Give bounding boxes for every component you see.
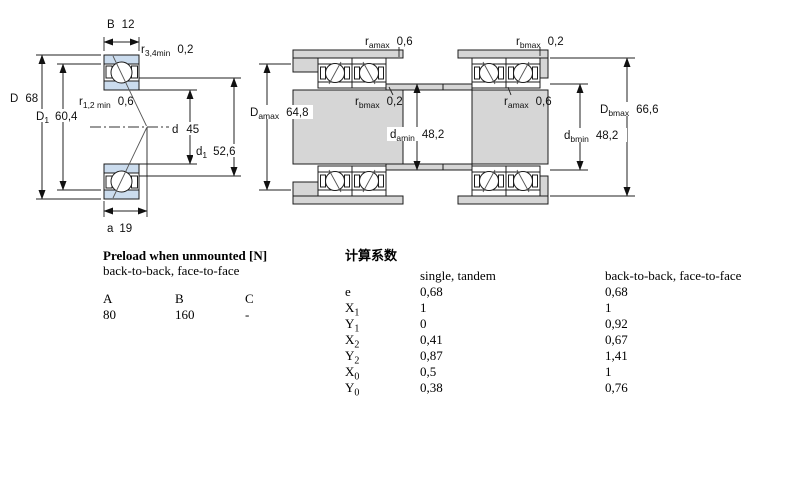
dim-label-D1: D160,4 [36, 111, 78, 125]
preload-col-header: A [103, 291, 175, 306]
factor-value: 0,5 [420, 364, 605, 379]
technical-drawings: B12 r3,4min0,2 D68 D160,4 r1,2 min0,6 d4… [0, 0, 800, 245]
factor-value: 1,41 [605, 348, 750, 363]
factors-col2-header: back-to-back, face-to-face [605, 268, 750, 283]
factor-label: X1 [345, 300, 420, 315]
factors-col1-header: single, tandem [420, 268, 605, 283]
preload-value: 160 [175, 307, 245, 322]
factor-value: 1 [605, 364, 750, 379]
factor-label: e [345, 284, 420, 299]
factor-value: 1 [605, 300, 750, 315]
dim-label-B: B12 [107, 19, 134, 31]
figure-arrangement-b: rbmax0,2 ramax0,6 Dbmax66,6 dbmin48,2 [443, 36, 669, 204]
factor-value: 1 [420, 300, 605, 315]
calculation-factors-table: 计算系数 single, tandem back-to-back, face-t… [345, 248, 750, 395]
factor-label: Y1 [345, 316, 420, 331]
dim-label-d1: d152,6 [196, 146, 236, 160]
dim-label-a: a19 [107, 223, 132, 235]
factors-table-title: 计算系数 [345, 248, 750, 263]
factor-label: Y2 [345, 348, 420, 363]
factor-value: 0,76 [605, 380, 750, 395]
factor-value: 0,92 [605, 316, 750, 331]
preload-table-subtitle: back-to-back, face-to-face [103, 263, 290, 278]
factor-value: 0,41 [420, 332, 605, 347]
dim-label-D: D68 [10, 93, 38, 105]
factor-value: 0,68 [420, 284, 605, 299]
figure-bearing-section: B12 r3,4min0,2 D68 D160,4 r1,2 min0,6 d4… [10, 19, 245, 235]
bearing-spec-drawing: B12 r3,4min0,2 D68 D160,4 r1,2 min0,6 d4… [0, 0, 800, 500]
factor-value: 0,67 [605, 332, 750, 347]
factor-value: 0 [420, 316, 605, 331]
factor-label: Y0 [345, 380, 420, 395]
preload-col-header: C [245, 291, 290, 306]
factor-value: 0,68 [605, 284, 750, 299]
dim-label-r34min: r3,4min0,2 [141, 44, 193, 58]
figure-arrangement-a: ramax0,6 rbmax0,2 Damax64,8 damin48,2 [247, 36, 455, 204]
factor-label: X0 [345, 364, 420, 379]
preload-value: 80 [103, 307, 175, 322]
dim-label-ramax-a: ramax0,6 [365, 36, 413, 50]
factor-value: 0,87 [420, 348, 605, 363]
preload-table-title: Preload when unmounted [N] [103, 248, 290, 263]
preload-table: Preload when unmounted [N] back-to-back,… [103, 248, 290, 322]
dim-label-r12min: r1,2 min0,6 [79, 96, 134, 110]
dim-label-d: d45 [172, 124, 199, 136]
preload-col-header: B [175, 291, 245, 306]
dim-label-rbmax-b: rbmax0,2 [516, 36, 564, 50]
preload-value: - [245, 307, 290, 322]
factor-value: 0,38 [420, 380, 605, 395]
factor-label: X2 [345, 332, 420, 347]
